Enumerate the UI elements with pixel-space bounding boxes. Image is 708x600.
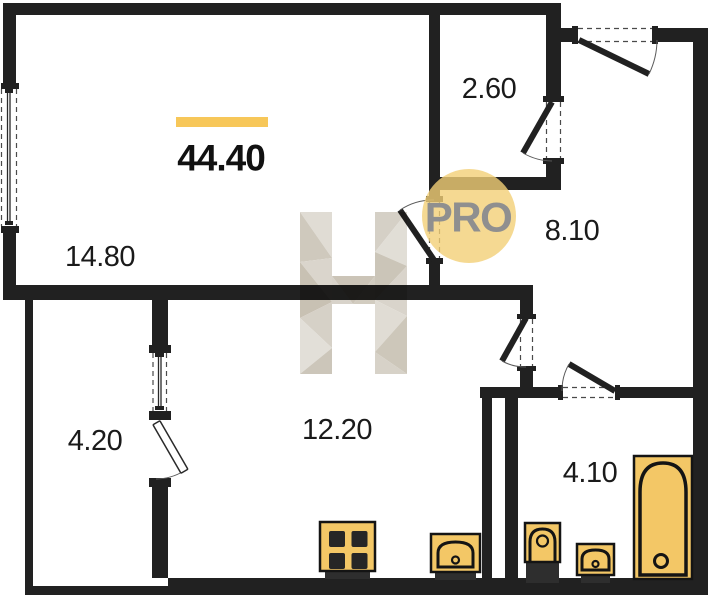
toilet-icon — [525, 523, 560, 583]
total-area-bar — [176, 117, 268, 127]
entrance-door — [579, 40, 657, 74]
stove-icon — [320, 522, 375, 579]
window-living-room — [1, 83, 19, 233]
window-balcony — [153, 353, 167, 411]
door-bathroom — [562, 364, 615, 391]
door-closet — [523, 102, 552, 161]
bathroom-sink-icon — [577, 544, 614, 583]
door-kitchen — [502, 318, 526, 367]
bathtub-icon — [634, 456, 692, 579]
room-label-bathroom: 4.10 — [563, 457, 617, 489]
door-balcony — [153, 421, 188, 479]
room-label-closet: 2.60 — [462, 73, 516, 105]
pro-badge: PRO — [422, 169, 516, 263]
room-label-living-room: 14.80 — [65, 241, 135, 273]
room-label-kitchen: 12.20 — [302, 414, 372, 446]
room-label-balcony: 4.20 — [68, 425, 122, 457]
kitchen-sink-icon — [431, 534, 480, 580]
floor-plan: H PRO 44.40 14.80 2.60 8.10 4.20 12.20 4… — [0, 0, 708, 600]
room-label-hallway: 8.10 — [545, 215, 599, 247]
pro-badge-label: PRO — [425, 194, 512, 241]
total-area-label: 44.40 — [177, 138, 265, 179]
floor-plan-canvas: H PRO 44.40 14.80 2.60 8.10 4.20 12.20 4… — [0, 0, 708, 600]
watermark-h: H — [300, 212, 407, 374]
